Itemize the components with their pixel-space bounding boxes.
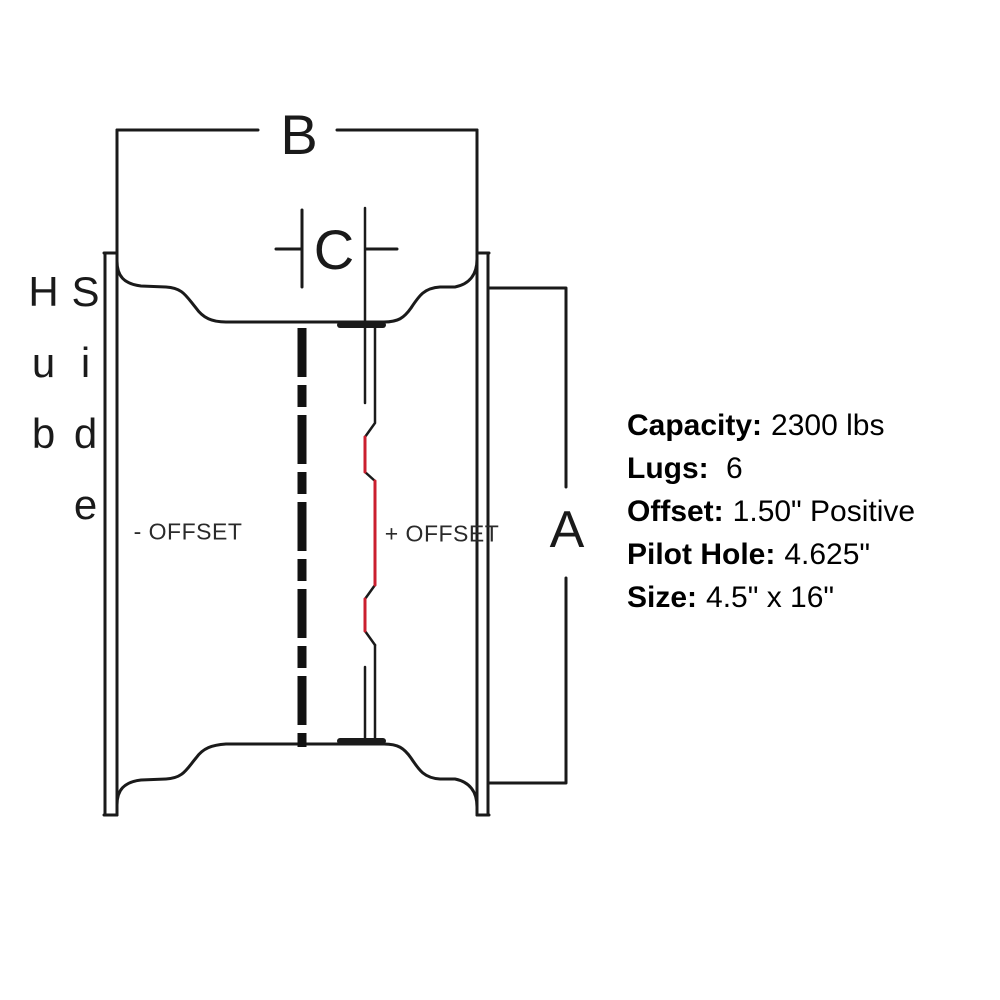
hub-side-label: Hub Side: [22, 268, 106, 808]
rim-top-bead-profile: [117, 259, 477, 322]
spec-label-capacity: Capacity:: [627, 409, 762, 442]
spec-value-size: 4.5" x 16": [706, 581, 834, 614]
spec-label-pilot-hole: Pilot Hole:: [627, 538, 775, 571]
spec-label-lugs: Lugs:: [627, 452, 709, 485]
spec-list: Capacity:2300 lbs Lugs: 6 Offset:1.50" P…: [627, 404, 915, 619]
mounting-face-highlight: [365, 437, 375, 631]
hub-disc-jog-middle: [365, 585, 375, 599]
rim-bottom-bead-profile: [117, 744, 477, 807]
spec-row-lugs: Lugs: 6: [627, 447, 915, 490]
spec-label-size: Size:: [627, 581, 697, 614]
hub-disc-jog-upper: [365, 472, 375, 481]
negative-offset-label: - OFFSET: [134, 519, 243, 546]
spec-row-size: Size:4.5" x 16": [627, 576, 915, 619]
dim-label-b: B: [280, 107, 317, 163]
rim-outline: [104, 130, 489, 815]
spec-value-lugs: 6: [718, 452, 743, 485]
spec-row-pilot-hole: Pilot Hole:4.625": [627, 533, 915, 576]
spec-value-capacity: 2300 lbs: [771, 409, 884, 442]
spec-row-capacity: Capacity:2300 lbs: [627, 404, 915, 447]
spec-value-pilot-hole: 4.625": [784, 538, 870, 571]
positive-offset-label: + OFFSET: [385, 521, 500, 548]
spec-value-offset: 1.50" Positive: [733, 495, 915, 528]
spec-label-offset: Offset:: [627, 495, 724, 528]
dim-label-a: A: [550, 504, 585, 556]
wheel-offset-diagram: B C A - OFFSET + OFFSET Hub Side Capacit…: [0, 0, 1000, 1000]
hub-disc-jog-lower: [365, 631, 375, 645]
dim-label-c: C: [314, 222, 354, 278]
spec-row-offset: Offset:1.50" Positive: [627, 490, 915, 533]
hub-disc: [340, 208, 383, 743]
hub-disc-right-line-top: [365, 325, 375, 437]
